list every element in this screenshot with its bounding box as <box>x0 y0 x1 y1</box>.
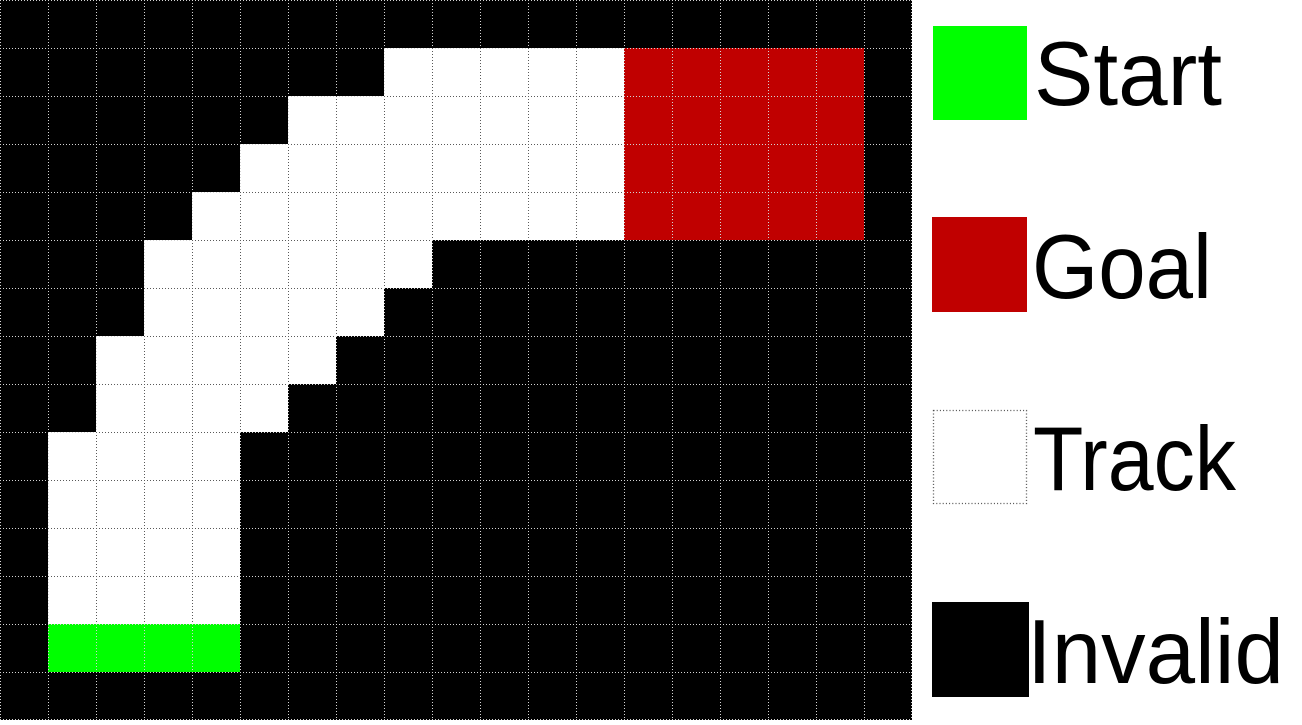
svg-text:Track: Track <box>1033 409 1236 510</box>
svg-text:Invalid: Invalid <box>1027 602 1284 703</box>
svg-text:Goal: Goal <box>1032 217 1212 318</box>
svg-text:Start: Start <box>1034 24 1222 125</box>
